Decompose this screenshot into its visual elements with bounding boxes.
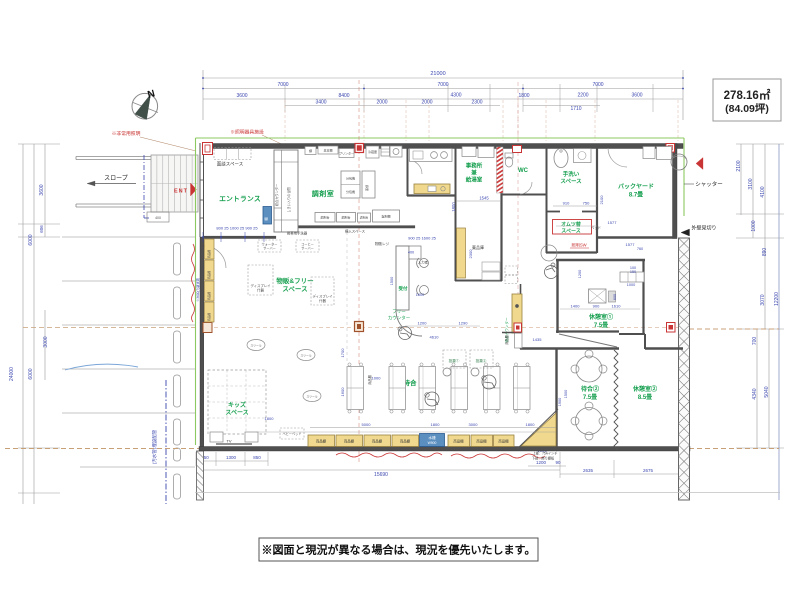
svg-text:基本棚: 基本棚 <box>323 148 332 153</box>
svg-text:待合②: 待合② <box>581 385 599 393</box>
svg-text:ベビーベッド: ベビーベッド <box>282 431 301 436</box>
svg-text:受付: 受付 <box>399 285 408 292</box>
svg-text:2100: 2100 <box>599 195 604 205</box>
svg-text:※非常用照明: ※非常用照明 <box>112 130 141 137</box>
svg-text:商品棚: 商品棚 <box>400 439 411 444</box>
svg-text:1200: 1200 <box>578 270 582 278</box>
svg-text:しきい入りの台間: しきい入りの台間 <box>286 187 291 213</box>
svg-text:オムツ替: オムツ替 <box>561 221 582 228</box>
svg-text:下部：飾り棚板: 下部：飾り棚板 <box>532 456 555 461</box>
svg-text:薬棚: 薬棚 <box>364 185 369 191</box>
svg-text:スツール: スツール <box>300 354 311 358</box>
svg-text:商品棚: 商品棚 <box>372 439 383 444</box>
svg-text:上部：75Aインチ: 上部：75Aインチ <box>533 451 558 456</box>
svg-text:休憩室②: 休憩室② <box>632 385 657 393</box>
svg-text:商品棚: 商品棚 <box>207 250 211 259</box>
svg-text:ベッド: ベッド <box>591 226 601 230</box>
svg-text:什器: 什器 <box>257 288 264 293</box>
svg-text:4610: 4610 <box>430 335 440 340</box>
svg-text:商品棚: 商品棚 <box>453 439 464 444</box>
svg-text:ディスプレイ: ディスプレイ <box>312 294 332 299</box>
svg-text:1000: 1000 <box>372 376 382 381</box>
svg-text:薬品庫: 薬品庫 <box>472 244 484 250</box>
svg-text:携帯用手洗器: 携帯用手洗器 <box>287 231 308 236</box>
svg-text:商品棚: 商品棚 <box>316 439 327 444</box>
svg-text:調剤台: 調剤台 <box>341 215 350 220</box>
svg-text:278.16㎡: 278.16㎡ <box>724 88 771 102</box>
svg-text:事務所: 事務所 <box>466 162 483 170</box>
svg-text:5040: 5040 <box>764 386 770 397</box>
svg-text:1500: 1500 <box>564 390 568 398</box>
svg-text:1900: 1900 <box>558 398 562 406</box>
svg-text:WC: WC <box>518 168 529 174</box>
svg-text:1200: 1200 <box>418 321 428 326</box>
svg-text:3600: 3600 <box>39 184 45 195</box>
svg-text:冷蔵庫: 冷蔵庫 <box>368 149 377 154</box>
svg-text:商品棚: 商品棚 <box>207 271 211 280</box>
svg-text:物販&フリー: 物販&フリー <box>276 276 313 285</box>
svg-text:スペース: スペース <box>560 178 582 185</box>
svg-text:調剤室: 調剤室 <box>312 189 335 198</box>
svg-text:1435: 1435 <box>533 337 543 342</box>
svg-text:商品棚: 商品棚 <box>476 439 487 444</box>
svg-text:3070: 3070 <box>760 294 766 305</box>
svg-text:1000: 1000 <box>627 283 635 287</box>
svg-text:シャッター: シャッター <box>695 180 723 188</box>
svg-text:ENT: ENT <box>174 189 188 195</box>
svg-text:1800: 1800 <box>265 416 275 421</box>
svg-text:400: 400 <box>155 216 161 220</box>
svg-text:15690: 15690 <box>374 472 388 478</box>
svg-text:横入スペース: 横入スペース <box>345 229 366 234</box>
svg-text:1710: 1710 <box>570 106 581 112</box>
svg-text:1000: 1000 <box>751 220 757 231</box>
svg-text:4340: 4340 <box>752 388 758 399</box>
svg-text:1577: 1577 <box>626 242 636 247</box>
svg-text:7000: 7000 <box>437 82 448 88</box>
svg-text:1200: 1200 <box>536 460 547 465</box>
svg-text:休憩室①: 休憩室① <box>588 313 613 321</box>
svg-text:分包機: 分包機 <box>346 189 355 194</box>
svg-text:2100: 2100 <box>736 160 742 171</box>
svg-text:90: 90 <box>555 460 561 465</box>
svg-text:1610: 1610 <box>612 304 622 309</box>
svg-text:2000: 2000 <box>376 100 387 106</box>
svg-text:総合カウンター: 総合カウンター <box>274 184 279 206</box>
svg-text:900: 900 <box>593 304 600 309</box>
svg-text:(84.09坪): (84.09坪) <box>725 102 769 115</box>
svg-text:1800: 1800 <box>431 422 441 427</box>
svg-text:バックヤード: バックヤード <box>618 183 654 191</box>
svg-text:7000: 7000 <box>277 82 288 88</box>
svg-text:外壁見切り: 外壁見切り <box>691 225 716 232</box>
svg-text:3600: 3600 <box>631 93 642 99</box>
svg-text:スロープ: スロープ <box>104 175 128 182</box>
svg-text:スツール: スツール <box>306 395 317 399</box>
svg-text:投薬①: 投薬① <box>449 358 460 363</box>
svg-text:サーバー: サーバー <box>301 246 314 251</box>
svg-text:2635: 2635 <box>583 468 594 473</box>
svg-text:2675: 2675 <box>643 468 654 473</box>
svg-text:2300: 2300 <box>468 249 473 259</box>
svg-text:兼: 兼 <box>471 169 477 177</box>
svg-text:エントランス: エントランス <box>219 195 261 203</box>
svg-text:7.5畳: 7.5畳 <box>583 393 597 401</box>
svg-text:3100: 3100 <box>748 178 754 189</box>
svg-text:1800: 1800 <box>526 422 536 427</box>
svg-text:2200: 2200 <box>577 93 588 99</box>
svg-text:890: 890 <box>762 248 768 257</box>
svg-text:3000: 3000 <box>43 336 49 347</box>
svg-text:商品棚: 商品棚 <box>344 439 355 444</box>
svg-text:24000: 24000 <box>9 367 15 381</box>
svg-text:1800: 1800 <box>518 93 529 99</box>
svg-text:面談スペース: 面談スペース <box>217 161 244 168</box>
svg-text:1577: 1577 <box>608 220 618 225</box>
svg-text:※3600(?)新実測: ※3600(?)新実測 <box>195 278 200 302</box>
svg-text:6000: 6000 <box>28 368 34 379</box>
svg-text:手洗い: 手洗い <box>563 170 580 178</box>
svg-text:7000: 7000 <box>592 82 603 88</box>
svg-text:8400: 8400 <box>338 93 349 99</box>
svg-text:調剤台: 調剤台 <box>360 216 369 220</box>
svg-text:3000: 3000 <box>469 422 479 427</box>
svg-text:水槽: 水槽 <box>428 435 436 440</box>
svg-text:850: 850 <box>253 455 261 460</box>
svg-text:8.7畳: 8.7畳 <box>629 191 643 199</box>
svg-text:606: 606 <box>39 225 44 233</box>
svg-text:物販レジ: 物販レジ <box>375 241 390 246</box>
svg-text:400: 400 <box>408 251 414 255</box>
svg-text:1700: 1700 <box>340 348 345 358</box>
svg-text:スペース: スペース <box>282 285 307 293</box>
svg-text:錠剤棚: 錠剤棚 <box>381 214 390 219</box>
svg-text:分包機: 分包機 <box>346 176 355 181</box>
svg-text:760: 760 <box>637 247 643 251</box>
svg-text:4300: 4300 <box>450 93 461 99</box>
svg-text:5000: 5000 <box>362 422 372 427</box>
svg-text:4100: 4100 <box>760 186 766 197</box>
svg-text:21000: 21000 <box>430 71 445 77</box>
svg-text:1600: 1600 <box>340 387 345 397</box>
svg-text:プリンター: プリンター <box>339 151 354 156</box>
svg-text:700: 700 <box>752 337 758 346</box>
svg-text:TV: TV <box>226 439 231 444</box>
svg-text:800 25 1000 25 900 25: 800 25 1000 25 900 25 <box>216 226 258 231</box>
svg-text:ディスプレイ: ディスプレイ <box>250 283 270 288</box>
svg-text:(汚水管)埋設配管: (汚水管)埋設配管 <box>151 429 158 464</box>
svg-text:スペース: スペース <box>225 410 248 417</box>
svg-text:1300: 1300 <box>226 455 237 460</box>
svg-text:調剤台: 調剤台 <box>320 215 329 220</box>
svg-text:※照明器具施設: ※照明器具施設 <box>230 129 264 136</box>
svg-text:1400: 1400 <box>571 304 581 309</box>
svg-text:750: 750 <box>583 201 590 206</box>
svg-text:スペース: スペース <box>561 229 580 235</box>
svg-text:900 25 1600 25: 900 25 1600 25 <box>408 236 437 241</box>
svg-text:1545: 1545 <box>479 196 489 201</box>
svg-text:入力者: 入力者 <box>418 260 429 265</box>
svg-text:サーバー: サーバー <box>263 246 276 251</box>
svg-text:給湯室: 給湯室 <box>466 176 483 184</box>
svg-text:商品棚: 商品棚 <box>207 313 211 322</box>
svg-text:投薬②: 投薬② <box>476 358 487 363</box>
svg-text:棚: 棚 <box>309 148 312 153</box>
svg-text:2000: 2000 <box>421 100 432 106</box>
svg-text:商品棚: 商品棚 <box>207 292 211 301</box>
svg-text:1800: 1800 <box>451 202 456 212</box>
svg-text:3600: 3600 <box>236 93 247 99</box>
svg-text:1290: 1290 <box>459 321 469 326</box>
svg-text:8.5畳: 8.5畳 <box>638 393 652 401</box>
svg-text:6000: 6000 <box>28 234 34 245</box>
svg-text:カウンター: カウンター <box>388 315 411 322</box>
svg-text:910: 910 <box>563 201 570 206</box>
svg-text:600: 600 <box>613 294 617 300</box>
svg-text:什器: 什器 <box>319 298 326 303</box>
svg-text:商品棚: 商品棚 <box>504 335 509 345</box>
svg-text:商品棚: 商品棚 <box>498 439 509 444</box>
svg-text:※図面と現況が異なる場合は、現況を優先いたします。: ※図面と現況が異なる場合は、現況を優先いたします。 <box>262 543 536 557</box>
svg-text:スツール: スツール <box>250 344 261 348</box>
svg-text:棚: 棚 <box>264 217 269 220</box>
svg-text:フリー: フリー <box>392 309 406 314</box>
svg-text:3400: 3400 <box>315 100 326 106</box>
svg-text:1500: 1500 <box>390 277 394 285</box>
svg-text:12200: 12200 <box>774 292 780 306</box>
svg-text:W900: W900 <box>428 441 437 445</box>
svg-text:1600: 1600 <box>416 293 424 297</box>
svg-text:150: 150 <box>630 270 636 274</box>
svg-text:2300: 2300 <box>471 100 482 106</box>
svg-text:キッズ: キッズ <box>228 401 246 409</box>
svg-text:7.5畳: 7.5畳 <box>594 321 608 329</box>
